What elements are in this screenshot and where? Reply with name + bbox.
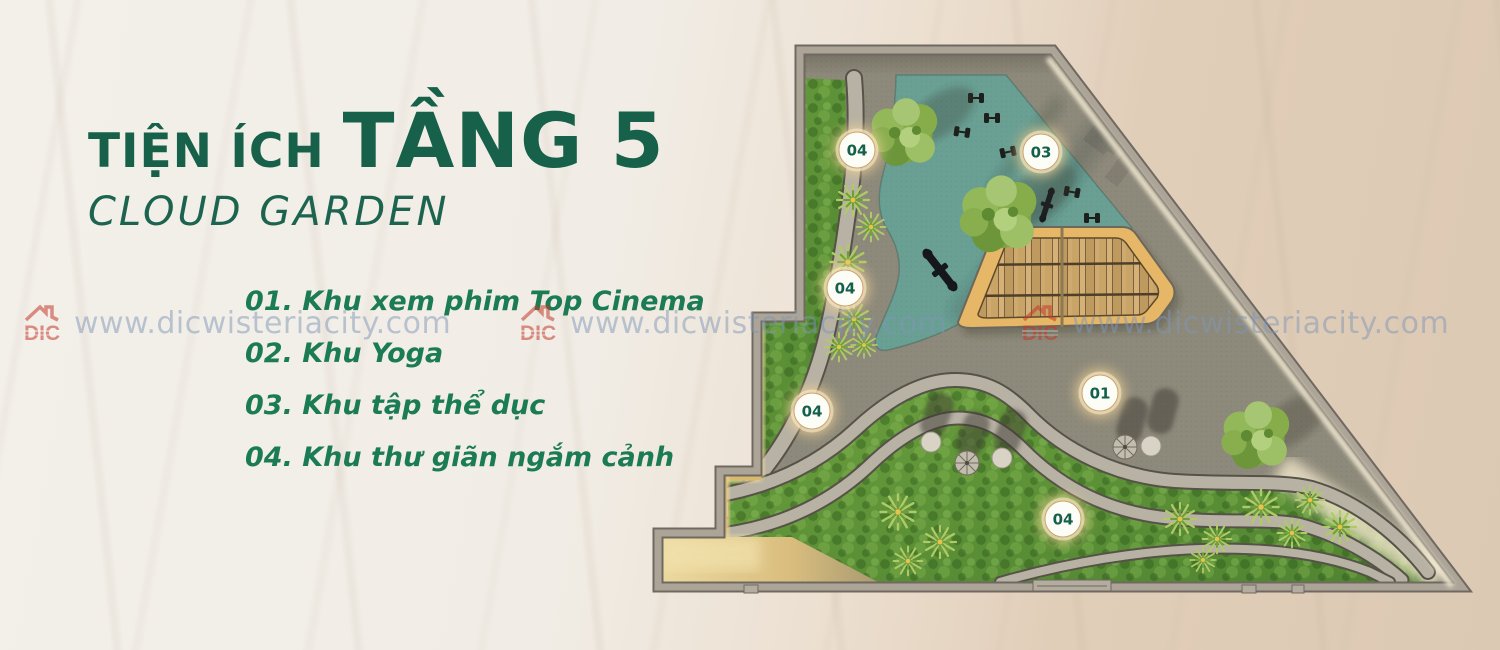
amenity-legend: 01. Khu xem phim Top Cinema02. Khu Yoga0… — [245, 288, 705, 496]
legend-item-3: 03. Khu tập thể dục — [245, 392, 705, 420]
plan-marker-01: 01 — [1082, 375, 1119, 412]
title-emphasis: TẦNG 5 — [343, 96, 665, 185]
plan-marker-04: 04 — [839, 132, 876, 169]
page-subtitle: CLOUD GARDEN — [88, 189, 665, 235]
plan-marker-04: 04 — [794, 393, 831, 430]
plan-marker-04: 04 — [827, 270, 864, 307]
page-title: TIỆN ÍCH TẦNG 5 — [88, 96, 665, 185]
legend-item-2: 02. Khu Yoga — [245, 340, 705, 368]
plan-marker-03: 03 — [1023, 134, 1060, 171]
legend-item-1: 01. Khu xem phim Top Cinema — [245, 288, 705, 316]
legend-item-4: 04. Khu thư giãn ngắm cảnh — [245, 444, 705, 472]
title-prefix: TIỆN ÍCH — [88, 124, 325, 179]
plan-marker-04: 04 — [1045, 501, 1082, 538]
page-header: TIỆN ÍCH TẦNG 5 CLOUD GARDEN — [88, 96, 665, 235]
